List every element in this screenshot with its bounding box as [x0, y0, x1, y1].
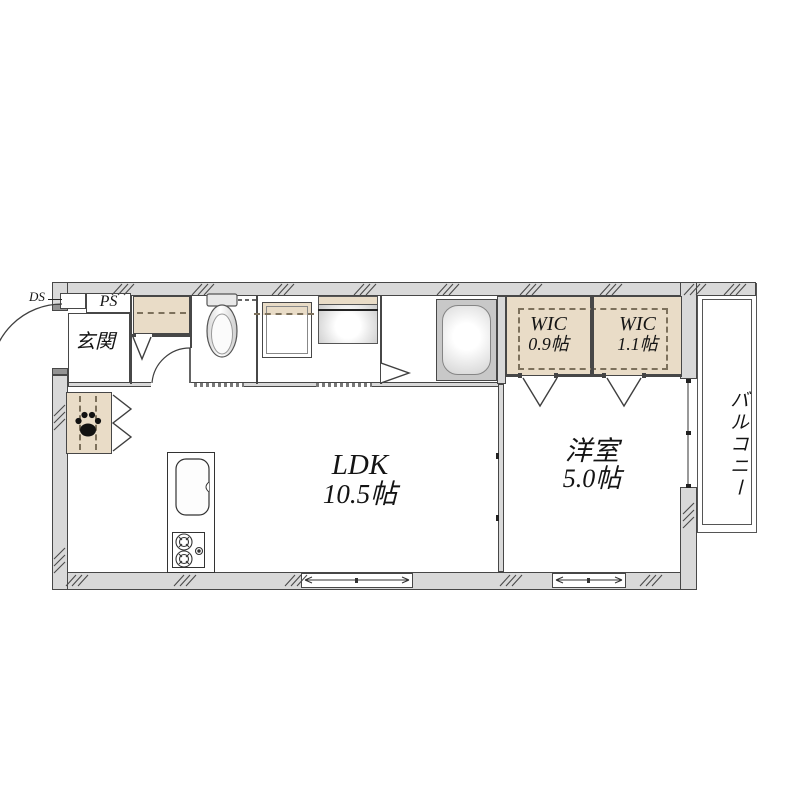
hall-closet-dash	[137, 312, 186, 314]
wic-right-name: WIC	[595, 314, 680, 335]
bathroom-folding-door	[381, 363, 409, 383]
ldk-label: LDK 10.5帖	[280, 450, 440, 508]
ldk-size: 10.5帖	[280, 480, 440, 508]
vanity-counter-line	[318, 309, 378, 311]
western-room-window	[552, 573, 626, 588]
wic-divider-wall	[591, 296, 594, 376]
western-room-name: 洋室	[522, 437, 662, 465]
entrance-door-arc	[0, 304, 62, 375]
pet-closet-accordion-door	[113, 395, 131, 451]
toilet-washroom-wall	[256, 296, 258, 384]
hall-closet-door	[133, 337, 151, 359]
hall-closet-sill-right	[152, 334, 190, 337]
ldk-window	[301, 573, 413, 588]
wic-sill-2	[558, 374, 604, 377]
floorplan: PS DS 玄関 WIC 0.9帖 WIC 1.1帖	[0, 0, 800, 800]
pipe-space-label: PS	[86, 294, 131, 311]
bath-wic-wall	[497, 296, 506, 384]
stove-box	[172, 532, 205, 568]
hall-toilet-wall	[190, 296, 192, 348]
balcony-label: バルコニー	[707, 345, 747, 545]
balcony-window	[680, 378, 697, 488]
wic-sill-3	[644, 374, 682, 377]
partition-tick-2	[496, 515, 499, 521]
washroom-bath-wall	[380, 296, 382, 384]
duct-space-label: DS	[22, 290, 52, 304]
pet-closet	[66, 392, 112, 454]
ldk-western-wall	[498, 384, 504, 572]
entrance-label: 玄関	[62, 332, 128, 353]
partition-tick-1	[496, 453, 499, 459]
wic-left-size: 0.9帖	[506, 335, 591, 354]
wic-left-label: WIC 0.9帖	[506, 314, 591, 354]
duct-space-leader-line	[48, 299, 62, 300]
hall-door-arc	[152, 348, 190, 383]
western-room-label: 洋室 5.0帖	[522, 437, 662, 492]
toilet-icon	[207, 294, 256, 357]
wic-left-door	[523, 378, 557, 406]
hall-ldk-wall	[68, 382, 500, 387]
wic-right-size: 1.1帖	[595, 335, 680, 354]
washroom-sliding-track	[316, 383, 372, 387]
hall-closet	[133, 296, 190, 334]
hall-closet-sill-left	[132, 334, 136, 337]
ldk-name: LDK	[280, 450, 440, 480]
hall-door-opening	[151, 381, 191, 388]
wic-right-door	[607, 378, 641, 406]
wic-right-label: WIC 1.1帖	[595, 314, 680, 354]
toilet-sliding-track	[188, 383, 244, 387]
western-room-size: 5.0帖	[522, 465, 662, 492]
top-wall	[52, 282, 756, 296]
bathtub	[442, 305, 491, 375]
wic-left-name: WIC	[506, 314, 591, 335]
pet-closet-dash-2	[95, 396, 97, 450]
pet-closet-dash-1	[79, 396, 81, 450]
entrance-jamb-bottom	[52, 368, 68, 375]
duct-space-box	[60, 293, 86, 309]
wic-sill-1	[506, 374, 520, 377]
washer-dash	[254, 313, 314, 315]
